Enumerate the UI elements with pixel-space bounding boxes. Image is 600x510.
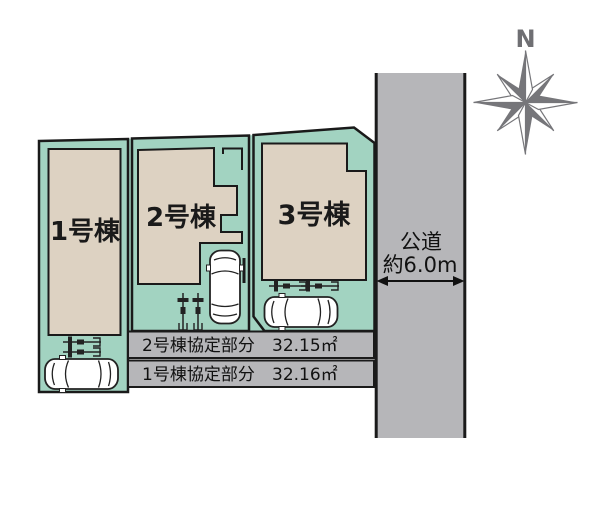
compass-rose-icon	[474, 51, 578, 155]
agreement-row-area: 32.15㎡	[272, 336, 338, 356]
plot-2-area: 2号棟	[132, 136, 249, 332]
building-3-label: 3号棟	[278, 200, 352, 231]
building-2-label: 2号棟	[146, 203, 217, 233]
agreement-row-area: 32.16㎡	[272, 365, 338, 385]
plot-3-area: 3号棟	[254, 128, 375, 332]
building-1-label: 1号棟	[50, 217, 121, 247]
car-icon	[207, 251, 244, 324]
agreement-row: 2号棟協定部分 32.15㎡	[128, 332, 374, 359]
site-plan-canvas: 公道 約6.0m 1号棟 2号棟 3号棟	[0, 0, 600, 510]
agreement-row: 1号棟協定部分 32.16㎡	[128, 361, 374, 388]
agreement-row-label: 1号棟協定部分	[142, 365, 255, 385]
agreement-row-label: 2号棟協定部分	[142, 336, 255, 356]
car-icon	[265, 294, 338, 331]
plot-1-area: 1号棟	[39, 139, 128, 393]
compass-north-label: N	[515, 25, 535, 53]
car-icon	[45, 356, 118, 393]
road-name-label: 公道	[400, 230, 442, 254]
road-width-label: 約6.0m	[383, 253, 458, 277]
site-plan-diagram: 公道 約6.0m 1号棟 2号棟 3号棟	[0, 0, 600, 510]
road-area: 公道 約6.0m	[375, 73, 466, 438]
